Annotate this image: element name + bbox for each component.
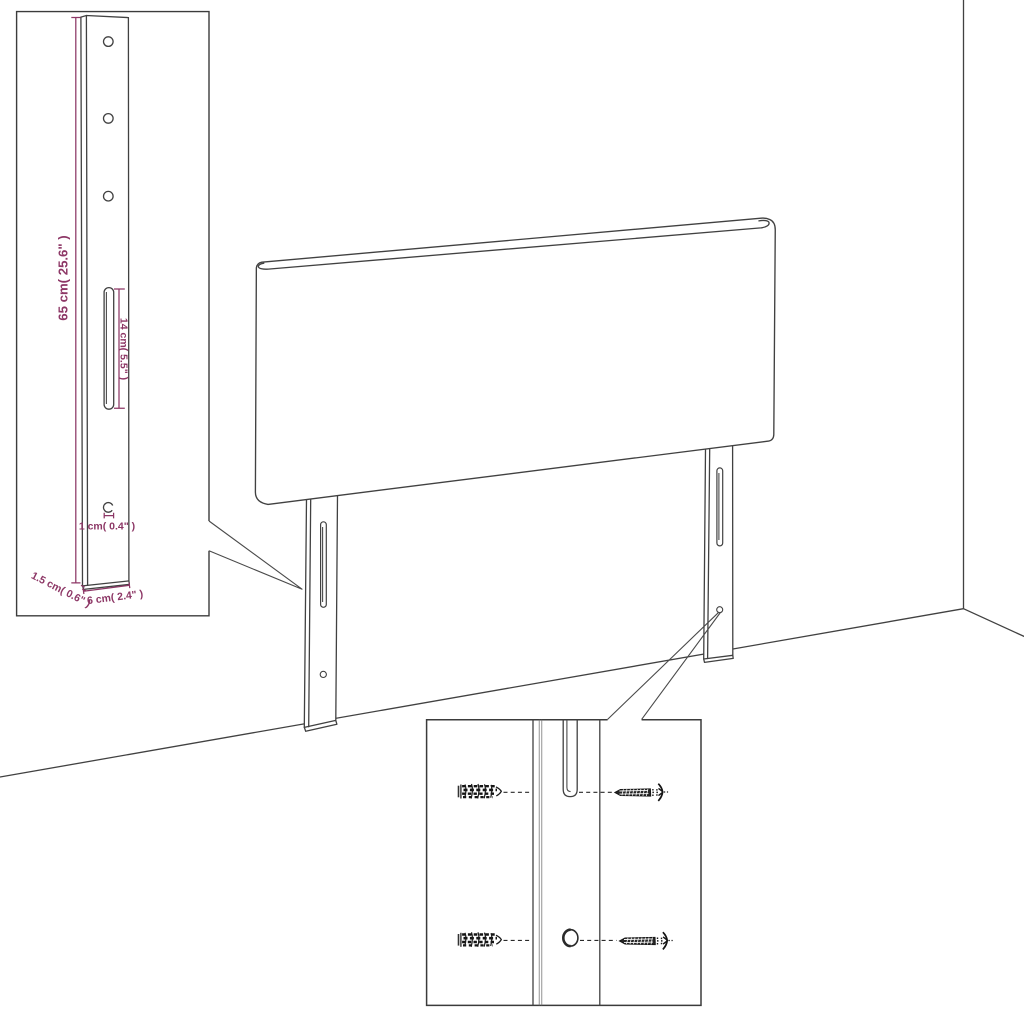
svg-text:1 cm( 0.4" ): 1 cm( 0.4" ): [79, 521, 135, 533]
svg-text:14 cm( 5.5" ): 14 cm( 5.5" ): [118, 318, 130, 380]
svg-text:65 cm( 25.6" ): 65 cm( 25.6" ): [55, 235, 70, 320]
